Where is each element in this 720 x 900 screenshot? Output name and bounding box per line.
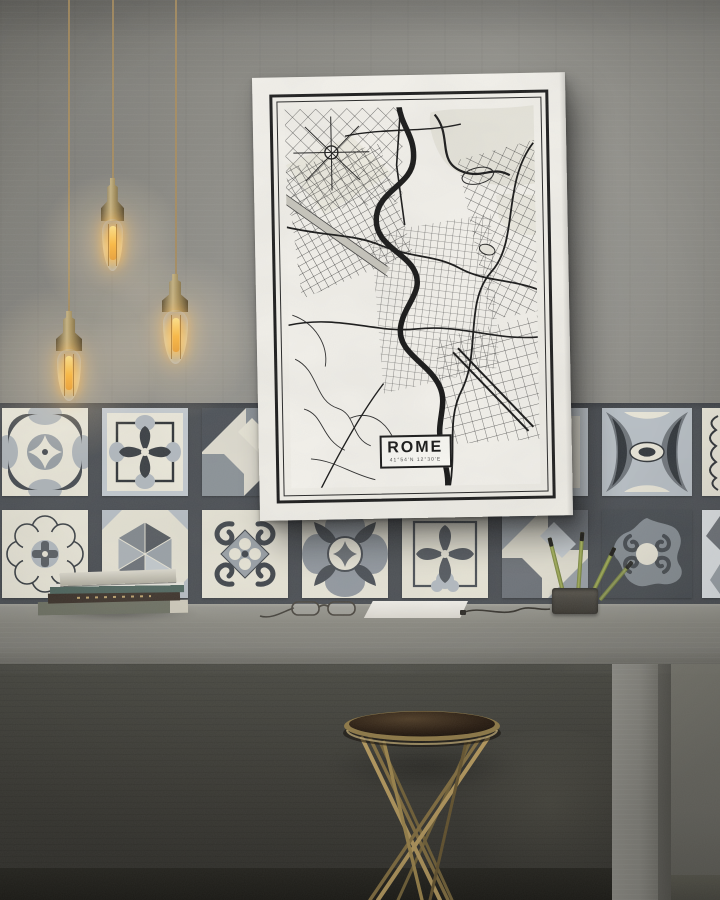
brass-stool: [300, 698, 550, 900]
tile-clover-frame: [102, 408, 188, 496]
tile-wavy-sliver: [702, 408, 720, 496]
poster-coordinates: 41°54'N 12°30'E: [383, 457, 447, 463]
filament-wire: [180, 315, 181, 358]
poster-frame-inner: ROME 41°54'N 12°30'E: [276, 97, 548, 497]
filament-wire: [64, 354, 65, 396]
map-graphic: [285, 105, 541, 488]
desk-front-edge: [0, 622, 720, 664]
cable: [460, 600, 552, 620]
cable-wire: [462, 608, 550, 613]
glasses-lens-right: [328, 602, 355, 615]
bulb-filament: [172, 318, 179, 353]
poster-frame-outer: ROME 41°54'N 12°30'E: [269, 89, 555, 503]
tile-flower-circle-2: [302, 510, 388, 598]
desk-leg-panel: [612, 664, 658, 900]
tile-flower-circle: [2, 408, 88, 496]
right-recess-wall: [671, 664, 720, 875]
tile-eye: [602, 408, 692, 496]
stool-graphic: [300, 698, 550, 900]
rome-street-map: ROME 41°54'N 12°30'E: [285, 105, 541, 488]
filament-wire: [108, 224, 109, 266]
tile-swirl-square: [602, 510, 692, 598]
rome-title-box: ROME 41°54'N 12°30'E: [379, 434, 452, 468]
desk-leg-side-face: [658, 664, 671, 900]
bulb-filament: [66, 356, 73, 389]
right-recess-floor: [671, 875, 720, 900]
white-notebook: [356, 601, 468, 618]
pendant-cord: [112, 0, 114, 180]
pencil-holder: [552, 588, 598, 614]
cable-plug: [460, 610, 466, 615]
pendant-cord: [68, 0, 70, 314]
tile-clover-frame-2: [402, 510, 488, 598]
filament-wire: [171, 315, 172, 358]
glasses-temple-arm: [260, 608, 294, 617]
eyeglasses: [258, 594, 362, 624]
filament-wire: [73, 354, 74, 396]
tile-sliver-2: [702, 510, 720, 598]
glasses-lens-left: [292, 602, 319, 615]
interior-scene: ROME 41°54'N 12°30'E: [0, 0, 720, 900]
pendant-cord: [175, 0, 177, 276]
bulb-filament: [109, 226, 116, 259]
stool-seat: [349, 712, 495, 737]
book-gilt-lettering: [77, 595, 151, 599]
stool-legs: [362, 738, 488, 900]
tile-pinwheel-arrows-2: [502, 510, 588, 598]
poster-title: ROME: [383, 439, 447, 456]
rome-map-poster: ROME 41°54'N 12°30'E: [252, 72, 573, 521]
filament-wire: [116, 224, 117, 266]
tile-swirl-diamond: [202, 510, 288, 598]
pencil-tip: [580, 532, 585, 541]
